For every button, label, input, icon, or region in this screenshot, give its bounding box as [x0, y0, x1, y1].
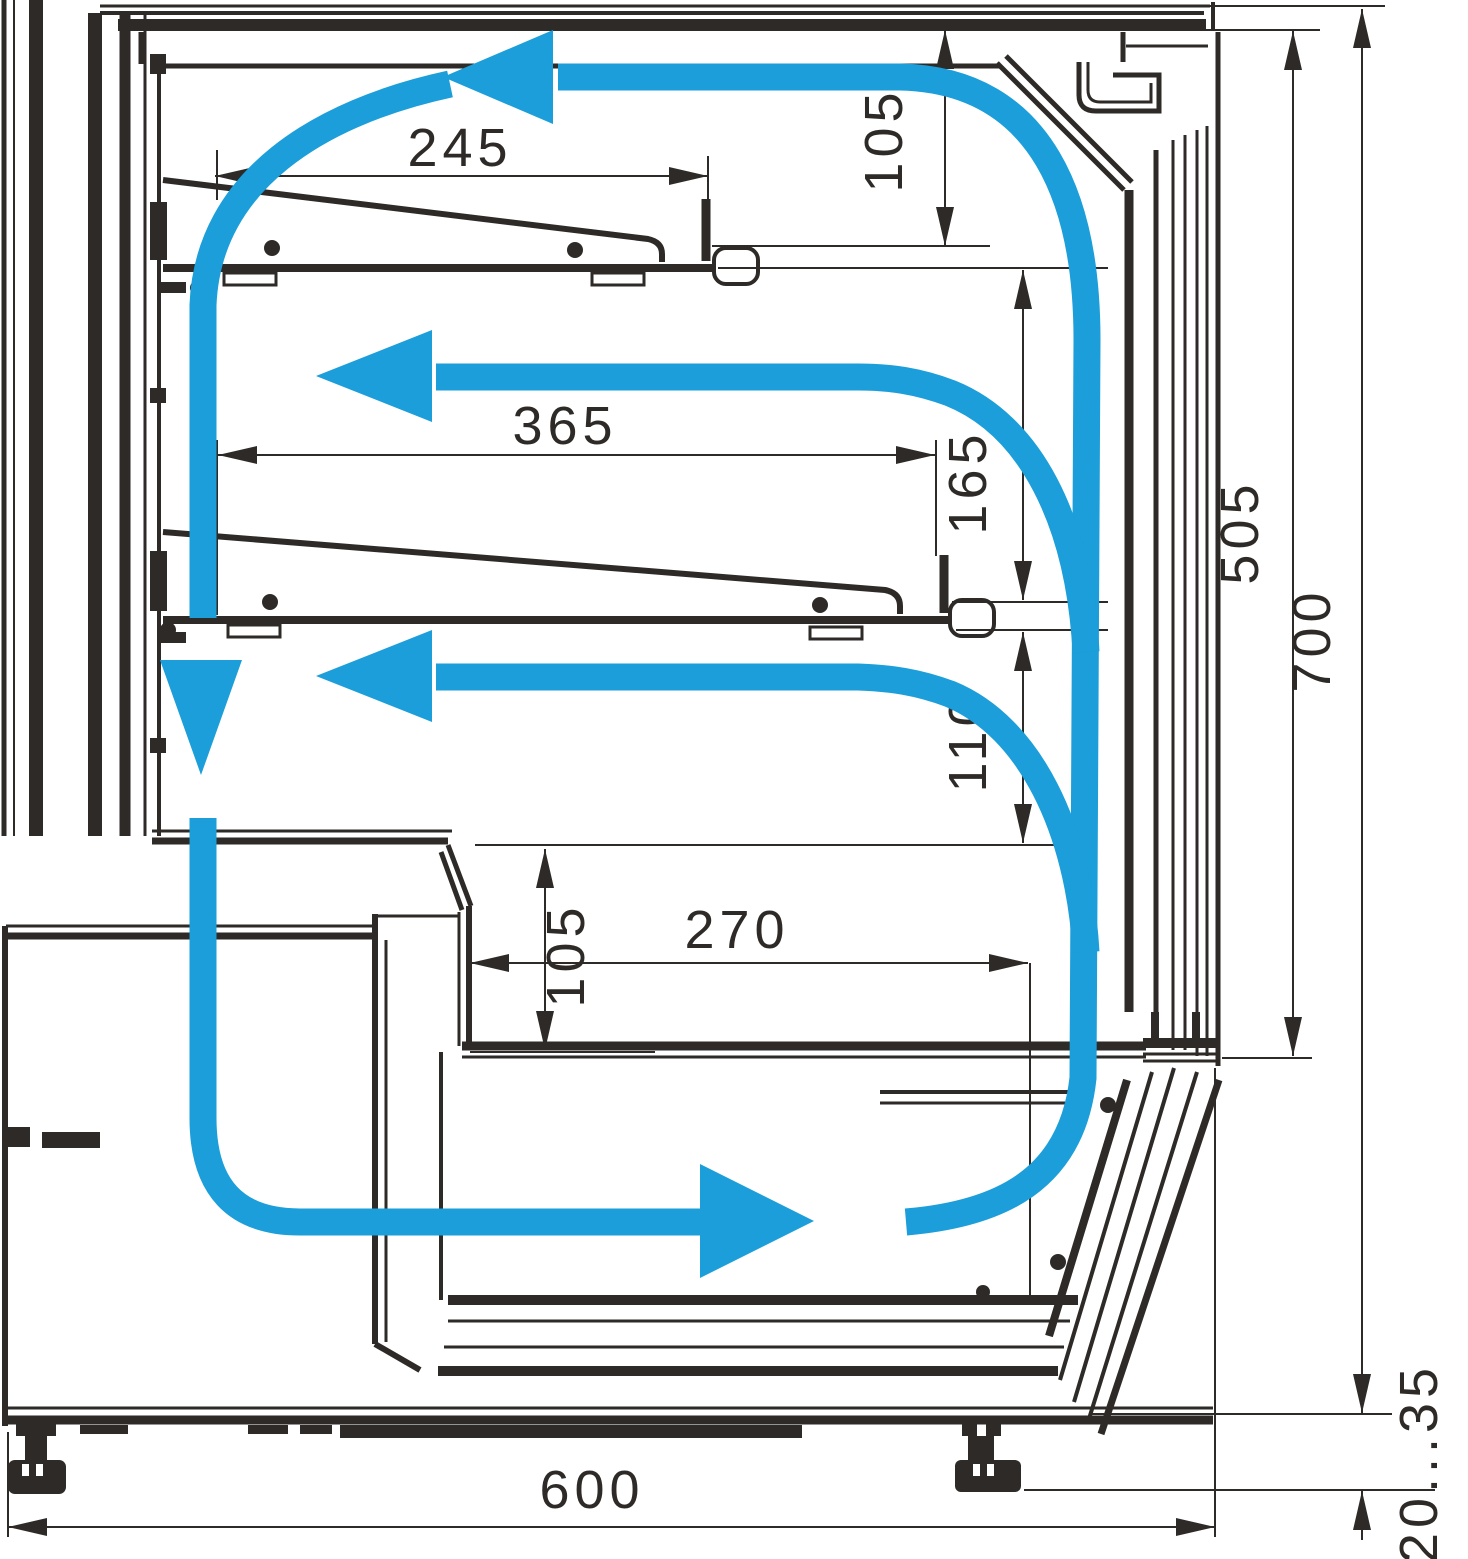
- adjustable-foot-left: [8, 1424, 66, 1494]
- dim-arrow: [1176, 1518, 1215, 1536]
- shelf-foot: [224, 273, 276, 285]
- dim-arrow: [896, 446, 935, 464]
- shelf-screw: [262, 594, 278, 610]
- top-frame: [100, 2, 1213, 66]
- shelf-screw: [264, 240, 280, 256]
- adjustable-foot-right: [955, 1424, 1021, 1492]
- bracket-pivot: [160, 622, 176, 638]
- dim-arrow: [470, 954, 509, 972]
- dimension-label-leg-adjustment: 20...35: [1389, 1363, 1449, 1559]
- shelf-foot: [592, 273, 644, 285]
- dimension-label-deck-depth: 270: [684, 900, 789, 960]
- dimension-label-step-to-deck-gap: 105: [536, 902, 596, 1007]
- foot-screw: [25, 1436, 47, 1462]
- dim-arrow: [8, 1518, 47, 1536]
- dimension-label-overall-depth: 600: [539, 1460, 644, 1520]
- base-cabinet: [5, 831, 471, 1426]
- diagram-canvas: 245 105 365 165 110 105 270 505 700 600 …: [0, 0, 1468, 1559]
- airflow-arrow-icon: [316, 630, 432, 722]
- dim-arrow: [1014, 561, 1032, 600]
- dimension-label-top-to-middle-gap: 165: [938, 429, 998, 534]
- dim-arrow: [536, 849, 554, 888]
- dim-arrow: [1284, 31, 1302, 70]
- airflow-arrow-icon: [160, 660, 242, 775]
- base-plinth: [8, 1408, 1213, 1438]
- shelf-wall-bracket: [150, 551, 167, 611]
- rail-mount-tab: [150, 388, 166, 403]
- dim-arrow: [1284, 1017, 1302, 1056]
- shelf-screw: [812, 597, 828, 613]
- drawing-page: 245 105 365 165 110 105 270 505 700 600 …: [0, 0, 1468, 1559]
- dim-arrow: [1353, 9, 1371, 48]
- front-glass: [1129, 32, 1220, 1066]
- rail-mount-tab: [150, 738, 166, 753]
- dim-arrow: [1014, 632, 1032, 671]
- shelf-screw: [567, 242, 583, 258]
- dimension-label-overall-height: 700: [1282, 587, 1342, 692]
- dim-arrow: [936, 207, 954, 246]
- shelf-bracket-knuckle: [714, 248, 758, 284]
- dim-arrow: [669, 167, 708, 185]
- foot-screw: [968, 1436, 994, 1460]
- dimension-label-middle-shelf-depth: 365: [512, 396, 617, 456]
- shelf-foot: [810, 627, 862, 639]
- dim-arrow: [1353, 1491, 1371, 1530]
- airflow-arrow-icon: [700, 1164, 814, 1278]
- dimension-label-canopy-air-gap: 105: [854, 87, 914, 192]
- panel-clip: [976, 1285, 990, 1299]
- dim-arrow: [1014, 270, 1032, 309]
- vent-tab: [42, 1132, 100, 1148]
- dim-arrow: [989, 954, 1028, 972]
- dimension-label-top-shelf-depth: 245: [407, 118, 512, 178]
- shelf-foot: [228, 625, 280, 637]
- kick-recess: [340, 1425, 802, 1438]
- dim-arrow: [1353, 1374, 1371, 1413]
- airflow-arrow-icon: [443, 30, 553, 124]
- shelf-middle: [150, 532, 994, 643]
- panel-clip: [1050, 1254, 1066, 1270]
- dimension-label-glass-opening-height: 505: [1210, 479, 1270, 584]
- back-wall: [4, 0, 166, 836]
- dim-arrow: [1014, 804, 1032, 843]
- airflow-arrow-icon: [316, 330, 432, 422]
- panel-clip: [1100, 1097, 1116, 1113]
- lamp-housing-hook: [1079, 62, 1159, 111]
- dim-arrow: [936, 30, 954, 69]
- vent-tab: [8, 1127, 30, 1147]
- shelf-wall-bracket: [150, 202, 167, 260]
- dim-arrow: [218, 446, 257, 464]
